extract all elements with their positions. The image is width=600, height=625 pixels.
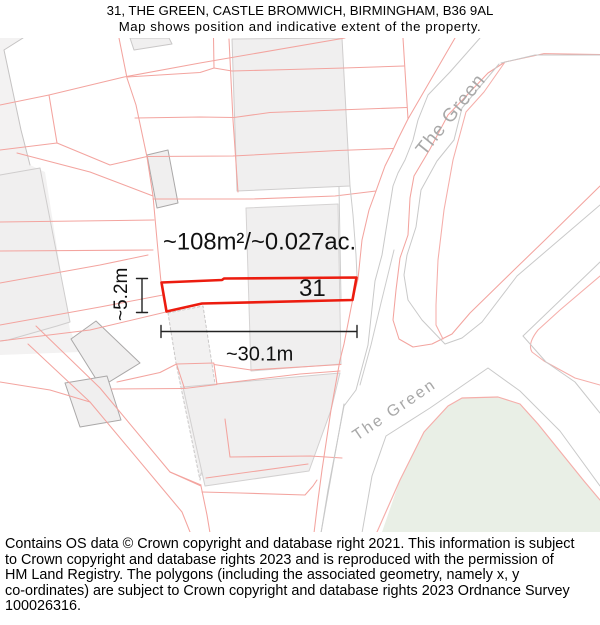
svg-text:~108m²/~0.027ac.: ~108m²/~0.027ac. xyxy=(163,229,356,256)
svg-text:~5.2m: ~5.2m xyxy=(111,268,132,321)
svg-text:~30.1m: ~30.1m xyxy=(226,344,293,366)
svg-text:31: 31 xyxy=(299,275,326,302)
svg-text:The Green: The Green xyxy=(412,70,490,159)
